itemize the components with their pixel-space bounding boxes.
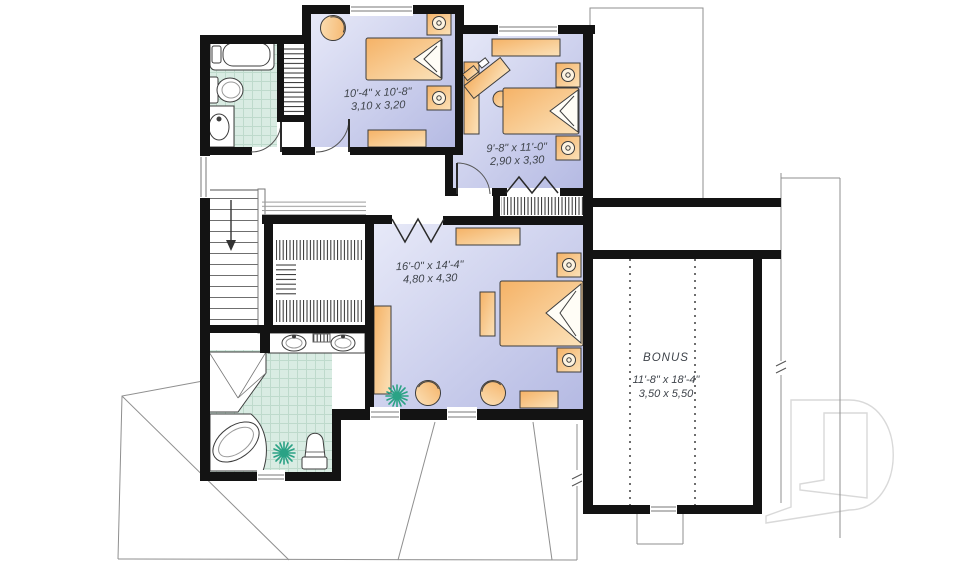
bed-icon: [366, 38, 442, 80]
corner-tub-icon: [206, 414, 267, 471]
bedroom-2-dimensions-metric: 2,90 x 3,30: [489, 154, 546, 168]
break-mark: [572, 474, 582, 486]
walk-in-closet: [273, 224, 365, 325]
dresser-icon: [456, 228, 520, 245]
bed-icon: [503, 88, 579, 134]
linen-closet: [284, 44, 304, 115]
window: [650, 503, 677, 516]
bed-icon: [500, 281, 583, 346]
nightstand-lamp-icon: [557, 348, 581, 372]
plant-icon: [386, 385, 408, 407]
nightstand-lamp-icon: [557, 253, 581, 277]
shelf-hatch: [284, 45, 304, 114]
closet-rod-hatch: [501, 197, 583, 215]
master-bedroom-dimensions-metric: 4,80 x 4,30: [403, 272, 459, 286]
bedroom-1-dimensions-imperial: 10'-4" x 10'-8": [344, 86, 413, 100]
double-vanity-icon: [268, 333, 365, 353]
nightstand-lamp-icon: [556, 63, 580, 87]
tall-dresser-icon: [374, 306, 391, 394]
side-table-icon: [520, 391, 558, 408]
plant-icon: [273, 442, 295, 464]
bedroom2-closet: [500, 196, 583, 216]
bonus-room-dimensions-metric: 3,50 x 5,50: [639, 388, 694, 400]
break-mark: [776, 361, 786, 373]
window: [498, 23, 558, 36]
window: [350, 3, 413, 16]
floor-plan: 10'-4" x 10'-8" 3,10 x 3,20 9'-8" x 11'-…: [0, 0, 960, 569]
toilet-icon: [206, 77, 243, 103]
window: [198, 156, 210, 198]
nightstand-lamp-icon: [556, 136, 580, 160]
master-bedroom-dimensions-imperial: 16'-0" x 14'-4": [396, 259, 465, 273]
dresser-icon: [368, 130, 426, 147]
window: [447, 407, 477, 422]
chimney-outline: [637, 514, 683, 544]
bench-icon: [480, 292, 495, 336]
gallery-railing: [262, 201, 366, 215]
closet-rod-hatch: [276, 264, 296, 297]
floor-plan-drawing: 10'-4" x 10'-8" 3,10 x 3,20 9'-8" x 11'-…: [0, 0, 960, 569]
bedroom-1-dimensions-metric: 3,10 x 3,20: [351, 99, 407, 113]
window: [370, 407, 400, 422]
window: [257, 470, 285, 483]
nightstand-lamp-icon: [427, 86, 451, 110]
closet-rod-hatch: [276, 240, 364, 260]
closet-rod-hatch: [276, 300, 364, 322]
bonus-room-dimensions-imperial: 11'-8" x 18'-4": [633, 374, 701, 386]
stairs-down: [209, 189, 265, 333]
dresser-icon: [492, 39, 560, 56]
bonus-room-label: BONUS: [643, 352, 689, 364]
nightstand-lamp-icon: [427, 11, 451, 35]
watermark-d-logo: [766, 400, 893, 523]
bedroom-2-dimensions-imperial: 9'-8" x 11'-0": [486, 141, 548, 155]
